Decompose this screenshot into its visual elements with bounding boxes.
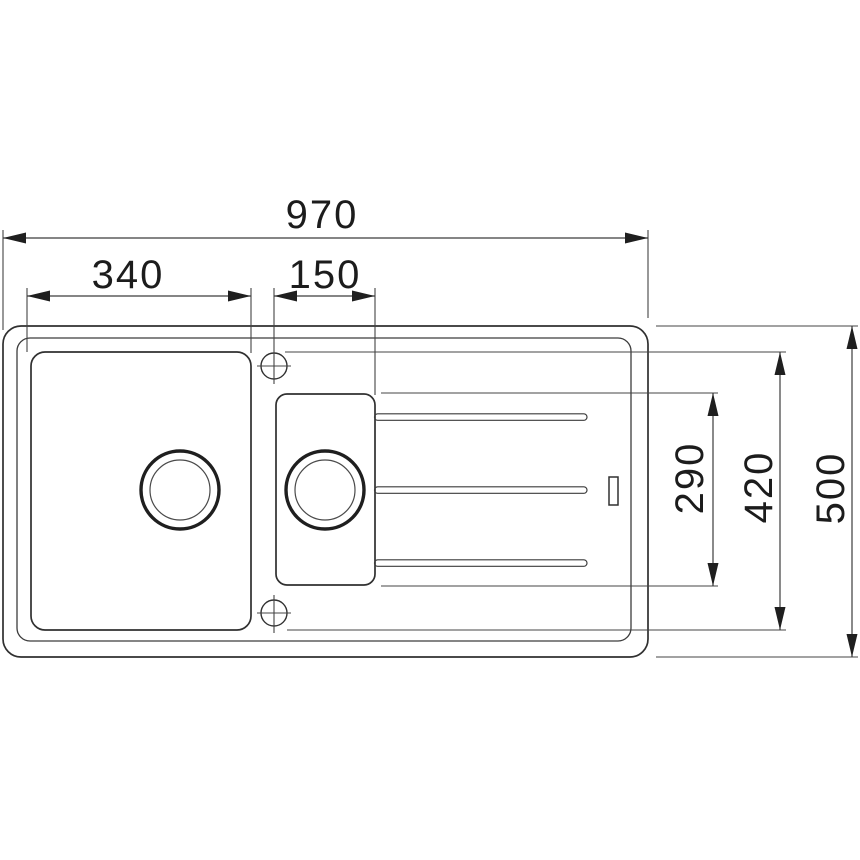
- dimension-label-420: 420: [737, 451, 781, 524]
- sink-outer-edge: [3, 326, 648, 657]
- half-bowl-drain-outer-ring: [286, 451, 364, 529]
- dimension-label-500: 500: [809, 452, 853, 525]
- arrow-left-icon: [27, 291, 50, 302]
- sink-body: [3, 326, 648, 657]
- dimension-half-bowl-depth: 290: [381, 393, 719, 586]
- technical-drawing-canvas: 970 340 150 290: [0, 0, 860, 860]
- drainer-groove-2: [375, 487, 588, 494]
- drainer-groove-3: [375, 560, 588, 567]
- dimension-half-bowl-width: 150: [274, 253, 375, 395]
- arrow-up-icon: [775, 352, 786, 375]
- arrow-left-icon: [3, 233, 26, 244]
- dimension-label-290: 290: [668, 442, 712, 515]
- drainer: [375, 414, 619, 567]
- drainer-groove-1: [375, 414, 588, 421]
- dimension-label-970: 970: [286, 193, 359, 237]
- main-bowl-drain-outer-ring: [141, 451, 219, 529]
- arrow-down-icon: [708, 563, 719, 586]
- dimension-label-340: 340: [92, 253, 165, 297]
- sink-dimension-drawing: 970 340 150 290: [0, 0, 860, 860]
- overflow-slot: [609, 477, 618, 505]
- main-bowl: [31, 352, 251, 630]
- arrow-up-icon: [847, 326, 858, 349]
- arrow-right-icon: [228, 291, 251, 302]
- sink-rim-edge: [17, 338, 631, 641]
- half-bowl-drain-inner-ring: [295, 460, 355, 520]
- half-bowl-outline: [276, 394, 375, 585]
- main-bowl-drain-inner-ring: [150, 460, 210, 520]
- arrow-down-icon: [775, 607, 786, 630]
- half-bowl: [276, 394, 375, 585]
- arrow-up-icon: [708, 393, 719, 416]
- arrow-right-icon: [625, 233, 648, 244]
- dimension-label-150: 150: [289, 253, 362, 297]
- arrow-down-icon: [847, 634, 858, 657]
